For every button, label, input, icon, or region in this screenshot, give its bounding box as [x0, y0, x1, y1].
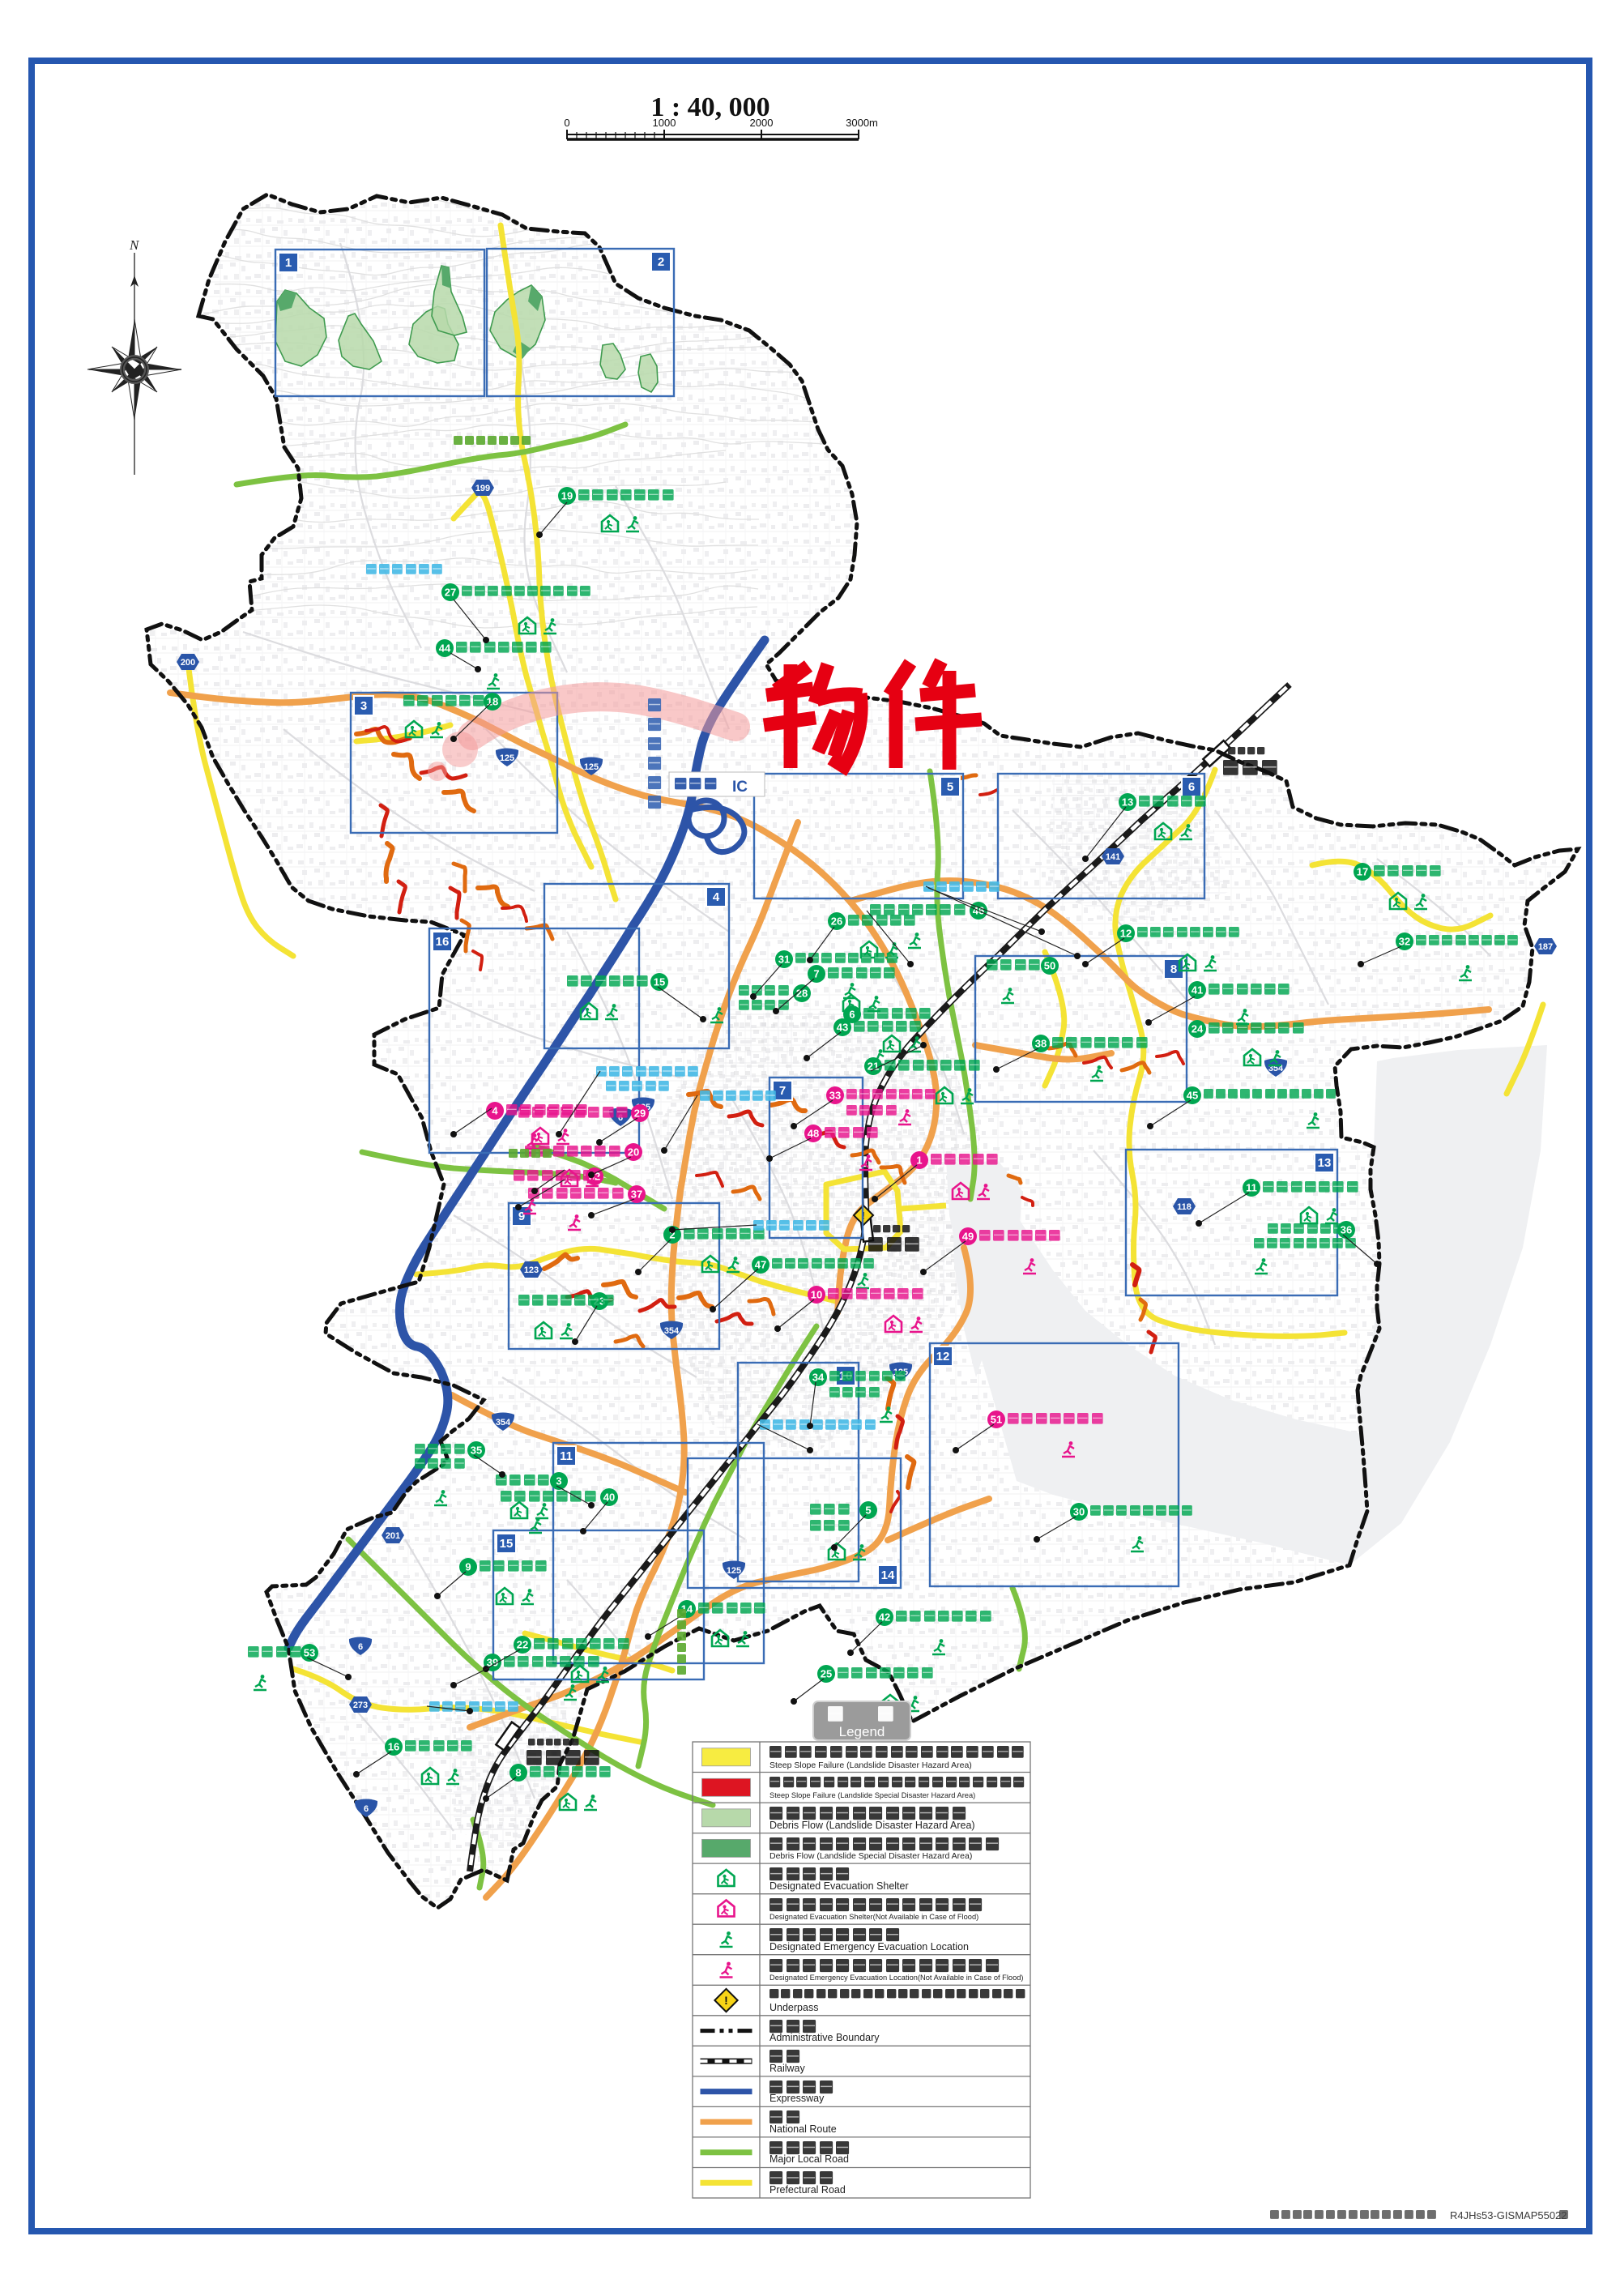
svg-text:1000: 1000	[653, 117, 676, 129]
svg-text:2000: 2000	[750, 117, 774, 129]
svg-text:Designated Emergency Evacuatio: Designated Emergency Evacuation Location	[769, 1941, 969, 1952]
svg-text:5: 5	[947, 780, 953, 794]
svg-text:200: 200	[181, 658, 195, 668]
svg-text:9: 9	[518, 1210, 525, 1223]
svg-text:2: 2	[658, 255, 664, 269]
svg-text:1: 1	[916, 1154, 922, 1167]
svg-text:Expressway: Expressway	[769, 2093, 825, 2104]
svg-text:201: 201	[386, 1531, 400, 1541]
svg-text:125: 125	[584, 762, 599, 772]
svg-text:11: 11	[560, 1449, 573, 1463]
svg-text:6: 6	[364, 1804, 369, 1814]
svg-text:50: 50	[1044, 960, 1055, 972]
svg-text:N: N	[129, 237, 140, 253]
svg-text:Debris Flow (Landslide Special: Debris Flow (Landslide Special Disaster …	[769, 1851, 972, 1861]
svg-text:34: 34	[812, 1372, 825, 1384]
svg-text:11: 11	[1246, 1182, 1257, 1194]
svg-text:37: 37	[631, 1189, 642, 1201]
svg-text:10: 10	[811, 1289, 822, 1301]
svg-text:38: 38	[1035, 1038, 1047, 1050]
svg-text:Designated Emergency Evacuatio: Designated Emergency Evacuation Location…	[769, 1974, 1024, 1982]
svg-text:14: 14	[881, 1568, 895, 1582]
svg-text:Prefectural Road: Prefectural Road	[769, 2184, 846, 2196]
svg-text:33: 33	[829, 1090, 841, 1102]
svg-text:0: 0	[564, 117, 569, 129]
svg-text:4: 4	[713, 890, 720, 904]
svg-text:30: 30	[1073, 1506, 1085, 1518]
svg-text:3: 3	[360, 699, 367, 713]
svg-text:Legend: Legend	[839, 1724, 885, 1739]
svg-text:187: 187	[1538, 942, 1553, 952]
svg-text:20: 20	[628, 1146, 639, 1159]
svg-text:6: 6	[1188, 780, 1195, 794]
svg-text:15: 15	[500, 1537, 514, 1551]
svg-text:21: 21	[868, 1061, 879, 1073]
svg-text:Designated Evacuation Shelter(: Designated Evacuation Shelter(Not Availa…	[769, 1913, 978, 1921]
svg-text:Steep Slope Failure (Landslide: Steep Slope Failure (Landslide Special D…	[769, 1791, 975, 1799]
svg-text:Administrative Boundary: Administrative Boundary	[769, 2032, 880, 2043]
svg-text:16: 16	[388, 1741, 399, 1753]
svg-text:44: 44	[439, 642, 451, 655]
svg-text:12: 12	[1120, 928, 1132, 940]
svg-text:32: 32	[1399, 936, 1410, 948]
svg-text:13: 13	[1318, 1156, 1332, 1170]
svg-text:!: !	[724, 1994, 728, 2007]
svg-text:24: 24	[1192, 1023, 1204, 1035]
svg-text:49: 49	[962, 1231, 974, 1243]
svg-text:6: 6	[849, 1009, 855, 1021]
svg-text:Steep Slope Failure (Landslide: Steep Slope Failure (Landslide Disaster …	[769, 1760, 972, 1770]
svg-text:354: 354	[664, 1326, 680, 1336]
svg-text:7: 7	[813, 968, 819, 980]
svg-text:45: 45	[1187, 1090, 1198, 1102]
svg-text:41: 41	[1192, 984, 1203, 996]
svg-text:199: 199	[475, 484, 490, 493]
svg-text:53: 53	[304, 1647, 315, 1659]
svg-text:12: 12	[936, 1350, 950, 1364]
svg-text:8: 8	[1170, 962, 1177, 976]
svg-text:17: 17	[1357, 866, 1368, 878]
svg-text:4: 4	[492, 1105, 498, 1117]
svg-text:354: 354	[496, 1418, 511, 1428]
svg-text:42: 42	[879, 1611, 890, 1624]
svg-text:Underpass: Underpass	[769, 2002, 818, 2013]
svg-text:51: 51	[991, 1414, 1002, 1426]
svg-text:141: 141	[1106, 852, 1120, 862]
svg-text:123: 123	[524, 1265, 539, 1275]
svg-text:48: 48	[808, 1128, 819, 1140]
svg-text:8: 8	[515, 1767, 521, 1779]
svg-text:5: 5	[865, 1504, 871, 1517]
svg-text:36: 36	[1341, 1224, 1352, 1236]
svg-text:15: 15	[654, 976, 665, 988]
svg-text:9: 9	[465, 1561, 471, 1573]
svg-text:22: 22	[517, 1639, 528, 1651]
svg-text:27: 27	[445, 587, 456, 599]
svg-text:Railway: Railway	[769, 2063, 806, 2074]
svg-text:19: 19	[561, 490, 573, 502]
svg-text:Designated Evacuation Shelter: Designated Evacuation Shelter	[769, 1880, 909, 1892]
svg-text:118: 118	[1177, 1202, 1192, 1212]
svg-text:13: 13	[1122, 796, 1133, 809]
svg-text:3: 3	[556, 1475, 561, 1487]
svg-text:16: 16	[436, 935, 450, 949]
svg-text:25: 25	[821, 1668, 832, 1680]
svg-text:26: 26	[831, 915, 842, 928]
svg-text:Debris Flow (Landslide Disaste: Debris Flow (Landslide Disaster Hazard A…	[769, 1820, 975, 1831]
svg-text:6: 6	[358, 1642, 363, 1652]
svg-text:47: 47	[755, 1259, 766, 1271]
svg-text:273: 273	[353, 1701, 368, 1710]
svg-text:35: 35	[471, 1445, 482, 1457]
svg-text:43: 43	[837, 1022, 848, 1034]
svg-text:R4JHs53-GISMAP55022: R4JHs53-GISMAP55022	[1450, 2209, 1567, 2221]
svg-text:Major Local Road: Major Local Road	[769, 2153, 849, 2165]
svg-text:National Route: National Route	[769, 2123, 837, 2135]
svg-text:IC: IC	[732, 779, 748, 796]
svg-text:40: 40	[603, 1492, 615, 1504]
svg-text:125: 125	[500, 753, 514, 763]
svg-text:31: 31	[778, 954, 790, 966]
svg-text:3000m: 3000m	[846, 117, 878, 129]
svg-text:125: 125	[727, 1566, 741, 1576]
svg-text:29: 29	[634, 1107, 646, 1120]
svg-text:7: 7	[779, 1084, 786, 1098]
svg-text:1: 1	[285, 256, 292, 270]
